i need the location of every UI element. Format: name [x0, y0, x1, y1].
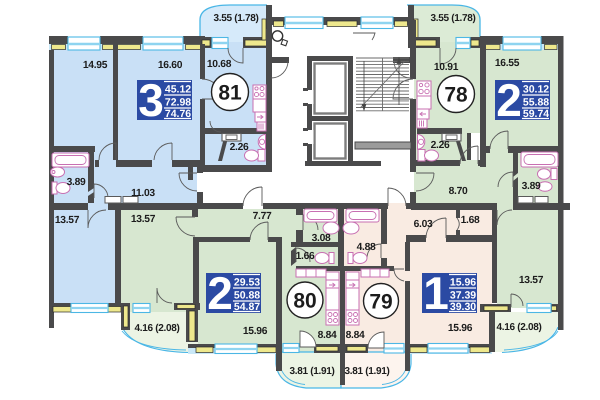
svg-text:72.98: 72.98 — [165, 97, 191, 109]
svg-text:2: 2 — [207, 267, 233, 319]
svg-text:11.03: 11.03 — [131, 188, 155, 199]
svg-text:2.26: 2.26 — [230, 142, 249, 153]
svg-text:6.03: 6.03 — [414, 219, 433, 230]
svg-text:54.87: 54.87 — [234, 301, 260, 313]
svg-text:79: 79 — [369, 291, 392, 314]
svg-text:78: 78 — [444, 84, 468, 107]
svg-text:14.95: 14.95 — [83, 60, 108, 71]
svg-text:30.12: 30.12 — [523, 84, 549, 96]
svg-text:39.30: 39.30 — [450, 301, 476, 313]
svg-text:8.84: 8.84 — [346, 330, 365, 341]
svg-text:3.81 (1.91): 3.81 (1.91) — [289, 366, 334, 377]
svg-text:55.88: 55.88 — [523, 97, 549, 109]
svg-text:1.66: 1.66 — [296, 251, 315, 262]
svg-text:3.55 (1.78): 3.55 (1.78) — [213, 13, 258, 24]
svg-text:37.39: 37.39 — [450, 290, 476, 302]
svg-text:74.76: 74.76 — [165, 108, 191, 120]
svg-text:3: 3 — [138, 74, 164, 126]
svg-text:4.16 (2.08): 4.16 (2.08) — [134, 323, 179, 334]
svg-text:15.96: 15.96 — [448, 323, 473, 334]
svg-text:15.96: 15.96 — [243, 326, 268, 337]
svg-text:8.84: 8.84 — [318, 330, 337, 341]
svg-text:80: 80 — [293, 290, 316, 313]
svg-text:8.70: 8.70 — [449, 186, 468, 197]
svg-text:10.91: 10.91 — [434, 62, 459, 73]
svg-text:16.55: 16.55 — [495, 58, 520, 69]
svg-text:15.96: 15.96 — [450, 277, 476, 289]
svg-text:4.88: 4.88 — [357, 242, 376, 253]
svg-text:16.60: 16.60 — [158, 60, 183, 71]
svg-text:3.55 (1.78): 3.55 (1.78) — [430, 13, 475, 24]
svg-text:1.68: 1.68 — [461, 215, 480, 226]
svg-text:13.57: 13.57 — [131, 214, 156, 225]
svg-text:3.08: 3.08 — [312, 233, 331, 244]
svg-text:13.57: 13.57 — [55, 215, 80, 226]
svg-text:59.74: 59.74 — [523, 108, 549, 120]
svg-text:45.12: 45.12 — [165, 84, 191, 96]
svg-text:3.89: 3.89 — [67, 177, 86, 188]
svg-text:2.26: 2.26 — [431, 140, 450, 151]
svg-text:13.57: 13.57 — [519, 275, 544, 286]
svg-text:4.16 (2.08): 4.16 (2.08) — [496, 322, 541, 333]
svg-text:29.53: 29.53 — [234, 277, 260, 289]
svg-text:1: 1 — [423, 267, 449, 319]
svg-text:10.68: 10.68 — [207, 59, 232, 70]
svg-text:7.77: 7.77 — [253, 211, 272, 222]
svg-text:2: 2 — [496, 74, 522, 126]
svg-text:50.88: 50.88 — [234, 290, 260, 302]
svg-text:3.89: 3.89 — [522, 181, 541, 192]
svg-text:81: 81 — [218, 82, 242, 105]
svg-text:3.81 (1.91): 3.81 (1.91) — [344, 366, 389, 377]
